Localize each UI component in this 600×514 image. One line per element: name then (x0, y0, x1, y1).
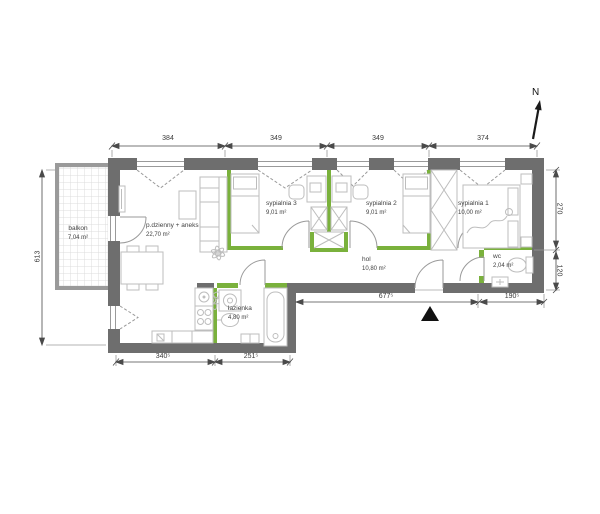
north-label: N (532, 88, 539, 98)
room-name: hol (362, 256, 371, 263)
room-name: wc (493, 253, 501, 260)
dim-top-3: 349 (360, 135, 396, 142)
window-bedroom1 (460, 158, 505, 188)
laptop (310, 183, 321, 192)
room-label-living: p.dzienny + aneks 22,70 m² (146, 221, 199, 240)
room-label-balkon: balkon 7,04 m² (58, 224, 98, 243)
wardrobe-bed2 (331, 207, 347, 230)
desk-chair2 (353, 185, 368, 199)
pillow (234, 177, 257, 189)
balcony-wall-top (55, 163, 108, 167)
north-arrow (533, 100, 542, 139)
room-area: 10,00 m² (458, 209, 489, 218)
dim-left-613: 613 (35, 239, 42, 275)
dim-inner-190: 190⁵ (494, 293, 530, 300)
pillow (508, 221, 518, 247)
dim-top (109, 143, 540, 158)
nightstand (521, 237, 532, 247)
desk-chair3 (289, 185, 304, 199)
coffee-table (179, 191, 196, 219)
balcony-door (108, 216, 146, 243)
dim-right-120: 120 (556, 253, 563, 289)
furniture (119, 170, 533, 346)
wardrobe-bed3 (311, 207, 327, 230)
door-bathroom (240, 260, 265, 285)
door-bedroom3 (282, 221, 309, 248)
partition-bed3-hol (227, 246, 283, 250)
balcony-wall-bottom (55, 286, 108, 290)
room-name: sypialnia 2 (366, 200, 397, 207)
right-wall (532, 170, 544, 293)
kitchen-furniture (152, 288, 213, 343)
pillow (508, 188, 518, 215)
room-label-bathroom: łazienka 4,80 m² (228, 304, 252, 323)
dim-bottom-340: 340⁵ (145, 353, 181, 360)
room-label-bedroom1: sypialnia 1 10,00 m² (458, 199, 489, 218)
room-name: p.dzienny + aneks (146, 222, 199, 229)
pillow (406, 177, 428, 189)
room-area: 2,04 m² (493, 262, 513, 271)
toilet-tank (526, 257, 533, 273)
bathroom-right-wall (287, 283, 296, 353)
wardrobe-bed1 (431, 170, 457, 250)
dim-top-1: 384 (150, 135, 186, 142)
room-area: 9,01 m² (266, 209, 297, 218)
room-name: sypialnia 3 (266, 200, 297, 207)
bathroom-wall-right-seg (265, 283, 287, 288)
dim-inner-677: 677⁵ (368, 293, 404, 300)
floor-plan: balkon 7,04 m² p.dzienny + aneks 22,70 m… (0, 0, 600, 514)
room-label-bedroom2: sypialnia 2 9,01 m² (366, 199, 397, 218)
partition-living-bed3 (227, 170, 231, 250)
window-bedroom3 (258, 158, 312, 188)
entrance-marker (421, 306, 439, 321)
dim-bottom-251: 251⁵ (233, 353, 269, 360)
bathroom-wall-left-seg (217, 283, 238, 288)
partition-bed2-hol (377, 246, 430, 250)
window-kitchen-side (108, 306, 138, 329)
door-bedroom2 (350, 221, 377, 248)
room-name: łazienka (228, 305, 252, 312)
bathtub (264, 288, 287, 346)
laptop (336, 183, 347, 192)
sofa (200, 177, 227, 252)
room-name: sypialnia 1 (458, 200, 489, 207)
room-name: balkon (68, 225, 87, 232)
wc-wall-stub-bottom (479, 276, 484, 283)
partition-bed3-bed2 (327, 170, 331, 232)
dim-top-4: 374 (465, 135, 501, 142)
hall-closet (314, 232, 344, 248)
room-area: 9,01 m² (366, 209, 397, 218)
room-area: 22,70 m² (146, 231, 199, 240)
window-living (137, 158, 184, 188)
room-label-hol: hol 10,80 m² (362, 255, 386, 274)
dim-top-2: 349 (258, 135, 294, 142)
hall-closet-front (310, 248, 348, 252)
room-area: 4,80 m² (228, 314, 252, 323)
dim-right-270: 270 (556, 191, 563, 227)
room-label-wc: wc 2,04 m² (493, 252, 513, 271)
dining-table (121, 252, 163, 284)
dining-set (121, 246, 163, 290)
room-area: 7,04 m² (58, 234, 98, 243)
nightstand (521, 174, 532, 184)
door-entrance (415, 260, 443, 288)
room-label-bedroom3: sypialnia 3 9,01 m² (266, 199, 297, 218)
room-area: 10,80 m² (362, 265, 386, 274)
bottom-wall-hol-left (293, 283, 415, 293)
